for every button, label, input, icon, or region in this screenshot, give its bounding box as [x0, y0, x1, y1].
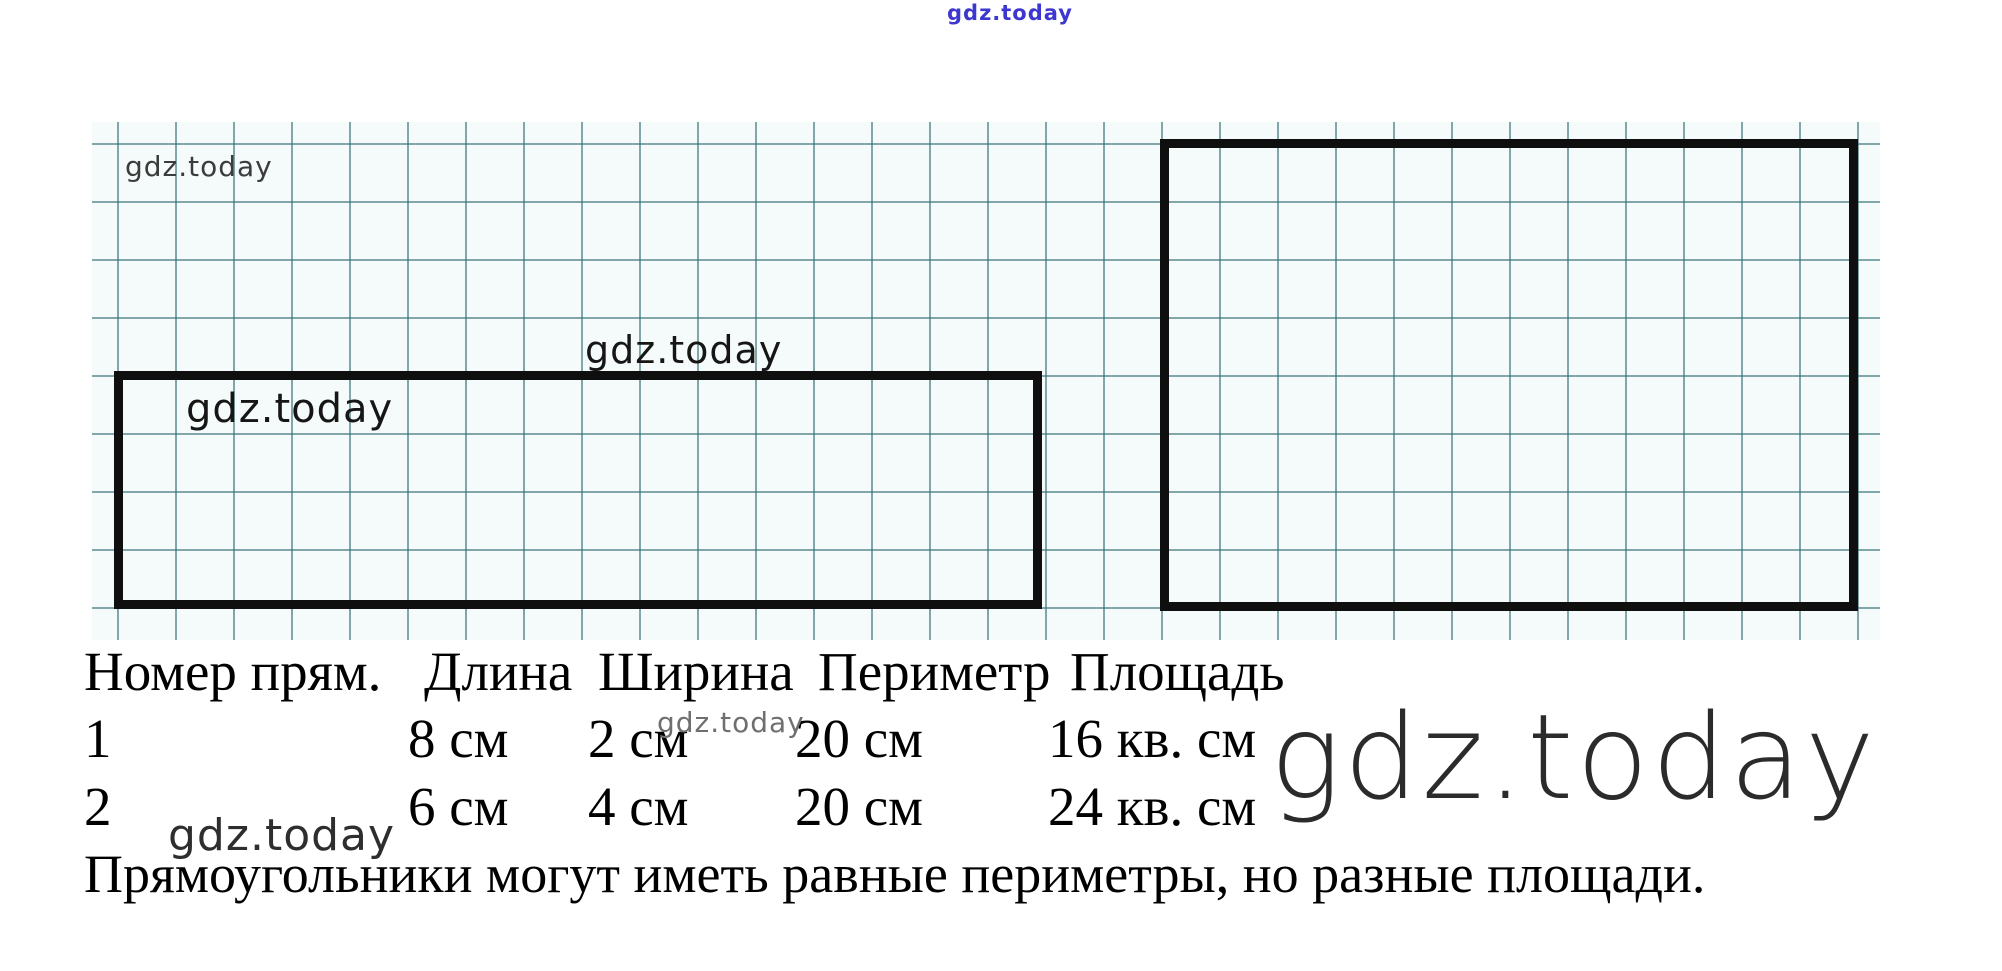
table-header-perimeter: Периметр	[818, 644, 1051, 699]
watermark-above-rect1: gdz.today	[585, 328, 782, 372]
rectangle-2-figure	[1160, 139, 1858, 611]
watermark-grid-top-left: gdz.today	[125, 150, 273, 183]
watermark-inside-rect1: gdz.today	[186, 386, 393, 432]
table-row2-length: 6 см	[408, 779, 508, 834]
table-row2-perimeter: 20 см	[795, 779, 923, 834]
table-header-number: Номер прям.	[84, 644, 381, 699]
watermark-top: gdz.today	[947, 1, 1073, 25]
table-row1-perimeter: 20 см	[795, 711, 923, 766]
table-row2-area: 24 кв. см	[1048, 779, 1256, 834]
worksheet-page: gdz.today gdz.today gdz.today gdz.today …	[0, 0, 2002, 971]
table-row2-width: 4 см	[588, 779, 688, 834]
table-header-length: Длина	[424, 644, 572, 699]
watermark-big-right: gdz.today	[1270, 688, 1878, 826]
table-header-area: Площадь	[1070, 644, 1285, 699]
table-row1-area: 16 кв. см	[1048, 711, 1256, 766]
conclusion-text: Прямоугольники могут иметь равные периме…	[84, 847, 1705, 901]
watermark-row1: gdz.today	[657, 706, 805, 739]
table-row2-number: 2	[84, 779, 112, 834]
table-row1-number: 1	[84, 711, 112, 766]
table-header-width: Ширина	[598, 644, 794, 699]
table-row1-length: 8 см	[408, 711, 508, 766]
